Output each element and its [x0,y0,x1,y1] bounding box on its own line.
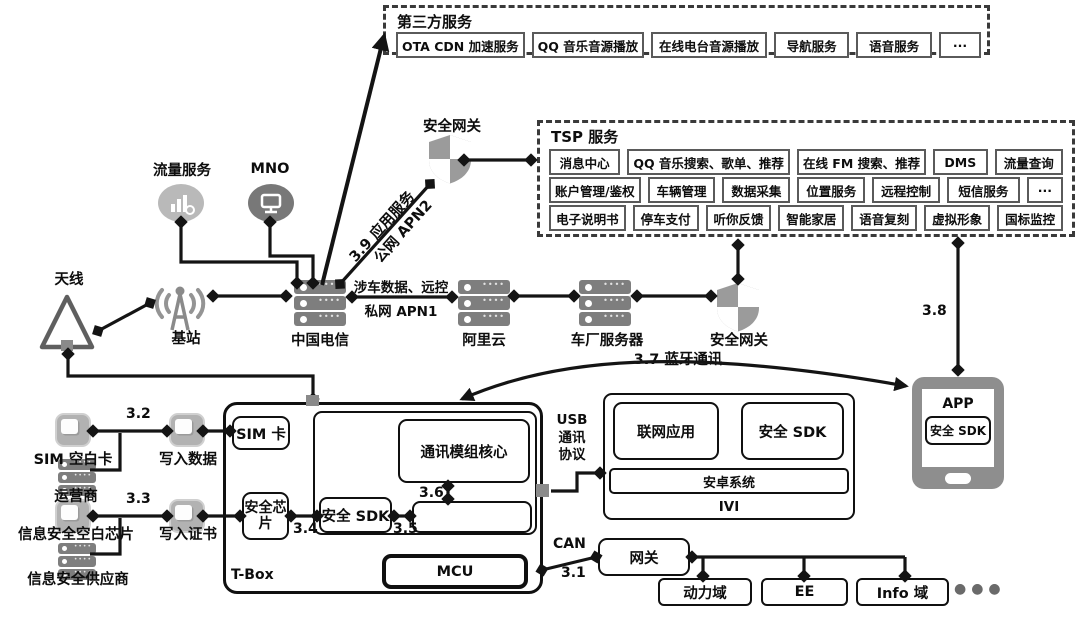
app-security-sdk-box: 安全 SDK [925,416,991,445]
comm-module-core-box: 通讯模组核心 [398,419,530,483]
sim-blank-card-icon [55,413,91,447]
tsp-services-box: TSP 服务 消息中心 QQ 音乐搜索、歌单、推荐 在线 FM 搜索、推荐 DM… [537,120,1075,237]
tbox-sim-card-box: SIM 卡 [232,416,290,450]
service-item: QQ 音乐音源播放 [532,32,645,58]
write-data-card-icon [169,413,205,447]
supplier-label: 信息安全供应商 [8,568,148,589]
tsp-item: 短信服务 [947,177,1020,203]
traffic-service-label: 流量服务 [144,159,220,180]
tsp-item: 智能家居 [778,205,844,231]
phone-screen: APP 安全 SDK [922,389,994,467]
service-item-more: ··· [939,32,981,58]
edge-3-2-label: 3.2 [126,406,151,422]
tsp-item-more: ··· [1027,177,1063,203]
service-item: 导航服务 [774,32,850,58]
ellipsis-dots: ●●● [954,581,1006,597]
mno-label: MNO [246,161,294,177]
edge-3-5-label: 3.5 [393,521,418,537]
china-telecom-label: 中国电信 [285,329,355,350]
antenna-label: 天线 [40,268,98,289]
tsp-item: DMS [933,149,987,175]
tsp-item: 虚拟形象 [924,205,990,231]
tsp-item: 车辆管理 [648,177,716,203]
tsp-item: QQ 音乐搜索、歌单、推荐 [627,149,790,175]
edge-3-3-label: 3.3 [126,491,151,507]
tsp-item: 消息中心 [549,149,620,175]
oem-server-label: 车厂服务器 [562,329,652,350]
write-cert-label: 写入证书 [152,523,224,544]
tbox-security-chip-box: 安全芯片 [242,492,289,540]
tsp-item: 国标监控 [997,205,1063,231]
tbox-label: T-Box [231,567,274,583]
write-data-label: 写入数据 [152,448,224,469]
bluetooth-edge-label: 3.7 蓝牙通讯 [616,348,740,369]
ivi-security-sdk-box: 安全 SDK [741,402,844,460]
apn2-edge-label: 3.9 应用服务 公网 APN2 [346,184,437,279]
chip-blank-label: 信息安全空白芯片 [0,523,152,544]
tsp-item: 电子说明书 [549,205,626,231]
third-party-services-box: 第三方服务 OTA CDN 加速服务 QQ 音乐音源播放 在线电台音源播放 导航… [383,5,990,55]
tsp-item: 在线 FM 搜索、推荐 [797,149,926,175]
ivi-net-app-box: 联网应用 [613,402,719,460]
service-item: 语音服务 [856,32,932,58]
aliyun-label: 阿里云 [455,329,513,350]
tsp-item: 远程控制 [872,177,940,203]
power-domain-box: 动力域 [658,578,752,606]
aliyun-server-icon [458,280,510,326]
ivi-label: IVI [603,499,855,515]
security-gateway-label: 安全网关 [701,329,777,350]
sim-blank-label: SIM 空白卡 [23,448,123,469]
gateway-box: 网关 [598,538,690,576]
apn1-edge-label: 私网 APN1 [346,300,456,320]
edge-3-8-label: 3.8 [922,303,947,319]
usb-protocol-label: USB 通讯 协议 [551,412,593,465]
phone-home-button [945,473,971,484]
edge-3-6-label: 3.6 [419,485,444,501]
security-gateway-top-shield-icon [428,134,472,184]
security-gateway-top-label: 安全网关 [414,115,490,136]
tsp-item: 账户管理/鉴权 [549,177,641,203]
base-station-icon [152,281,208,331]
telematics-architecture-diagram: { "third_party": { "title": "第三方服务", "it… [0,0,1080,621]
third-party-title: 第三方服务 [397,11,472,32]
antenna-icon [36,292,98,354]
tsp-item: 流量查询 [995,149,1064,175]
app-phone-icon: APP 安全 SDK [912,377,1004,489]
app-label: APP [922,396,994,412]
spare-module-box [412,501,532,533]
mno-icon [248,184,294,222]
tsp-item: 数据采集 [722,177,790,203]
edge-3-1-label: 3.1 [561,565,586,581]
tsp-title: TSP 服务 [551,126,618,147]
ee-domain-box: EE [761,578,848,606]
android-system-bar: 安卓系统 [609,468,849,494]
operator-label: 运营商 [40,485,112,506]
oem-server-icon [579,280,631,326]
service-item: 在线电台音源播放 [651,32,767,58]
traffic-service-icon [158,184,204,222]
edge-3-4-label: 3.4 [293,521,318,537]
china-telecom-server-icon [294,280,346,326]
tsp-item: 语音复刻 [851,205,917,231]
service-item: OTA CDN 加速服务 [396,32,525,58]
tsp-item: 位置服务 [797,177,865,203]
can-label: CAN [553,536,586,552]
tbox-security-sdk-box: 安全 SDK [319,497,392,533]
tsp-item: 停车支付 [633,205,699,231]
tsp-item: 听你反馈 [706,205,772,231]
security-gateway-shield-icon [716,282,760,332]
mcu-box: MCU [382,554,528,589]
info-domain-box: Info 域 [856,578,949,606]
base-station-label: 基站 [156,327,216,348]
vehicle-data-edge-label: 涉车数据、远控 [346,276,456,296]
